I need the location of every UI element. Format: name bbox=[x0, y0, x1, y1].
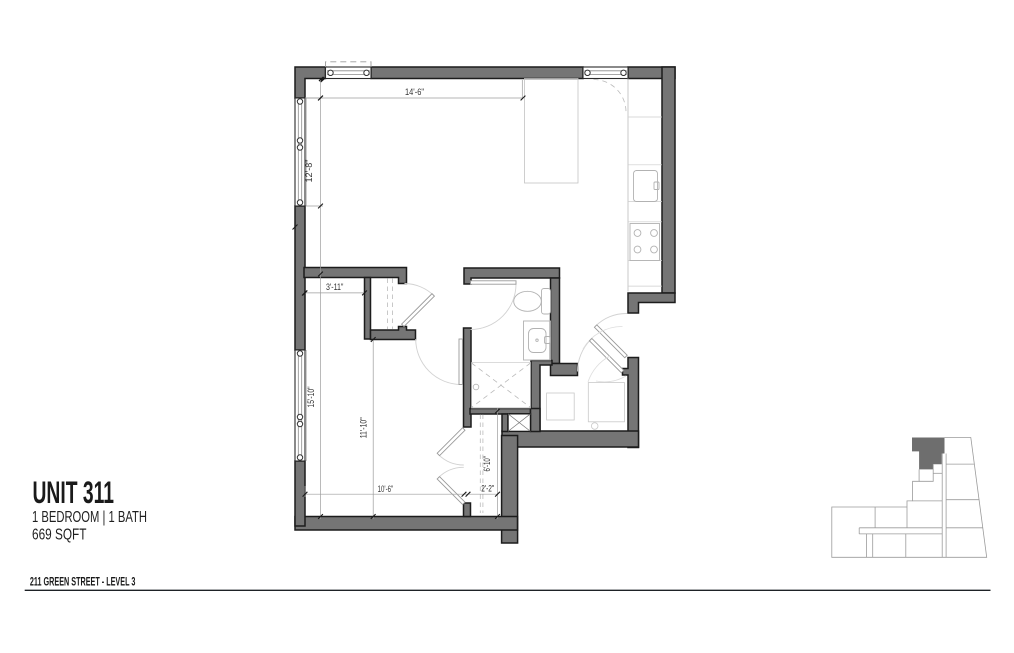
svg-text:1 BEDROOM | 1 BATH: 1 BEDROOM | 1 BATH bbox=[32, 509, 147, 526]
svg-text:15'-10": 15'-10" bbox=[306, 387, 316, 408]
svg-text:3'-11": 3'-11" bbox=[326, 282, 344, 292]
svg-text:11'-10": 11'-10" bbox=[359, 417, 369, 438]
svg-text:14'-6": 14'-6" bbox=[405, 87, 424, 97]
svg-text:669 SQFT: 669 SQFT bbox=[32, 527, 87, 544]
svg-text:10'-6": 10'-6" bbox=[378, 484, 394, 494]
svg-text:211 GREEN STREET - LEVEL 3: 211 GREEN STREET - LEVEL 3 bbox=[30, 577, 135, 589]
svg-text:6'-10": 6'-10" bbox=[482, 456, 492, 472]
svg-text:2'-2": 2'-2" bbox=[481, 484, 494, 494]
svg-text:12'-8": 12'-8" bbox=[304, 160, 314, 183]
svg-text:UNIT 311: UNIT 311 bbox=[33, 474, 115, 510]
